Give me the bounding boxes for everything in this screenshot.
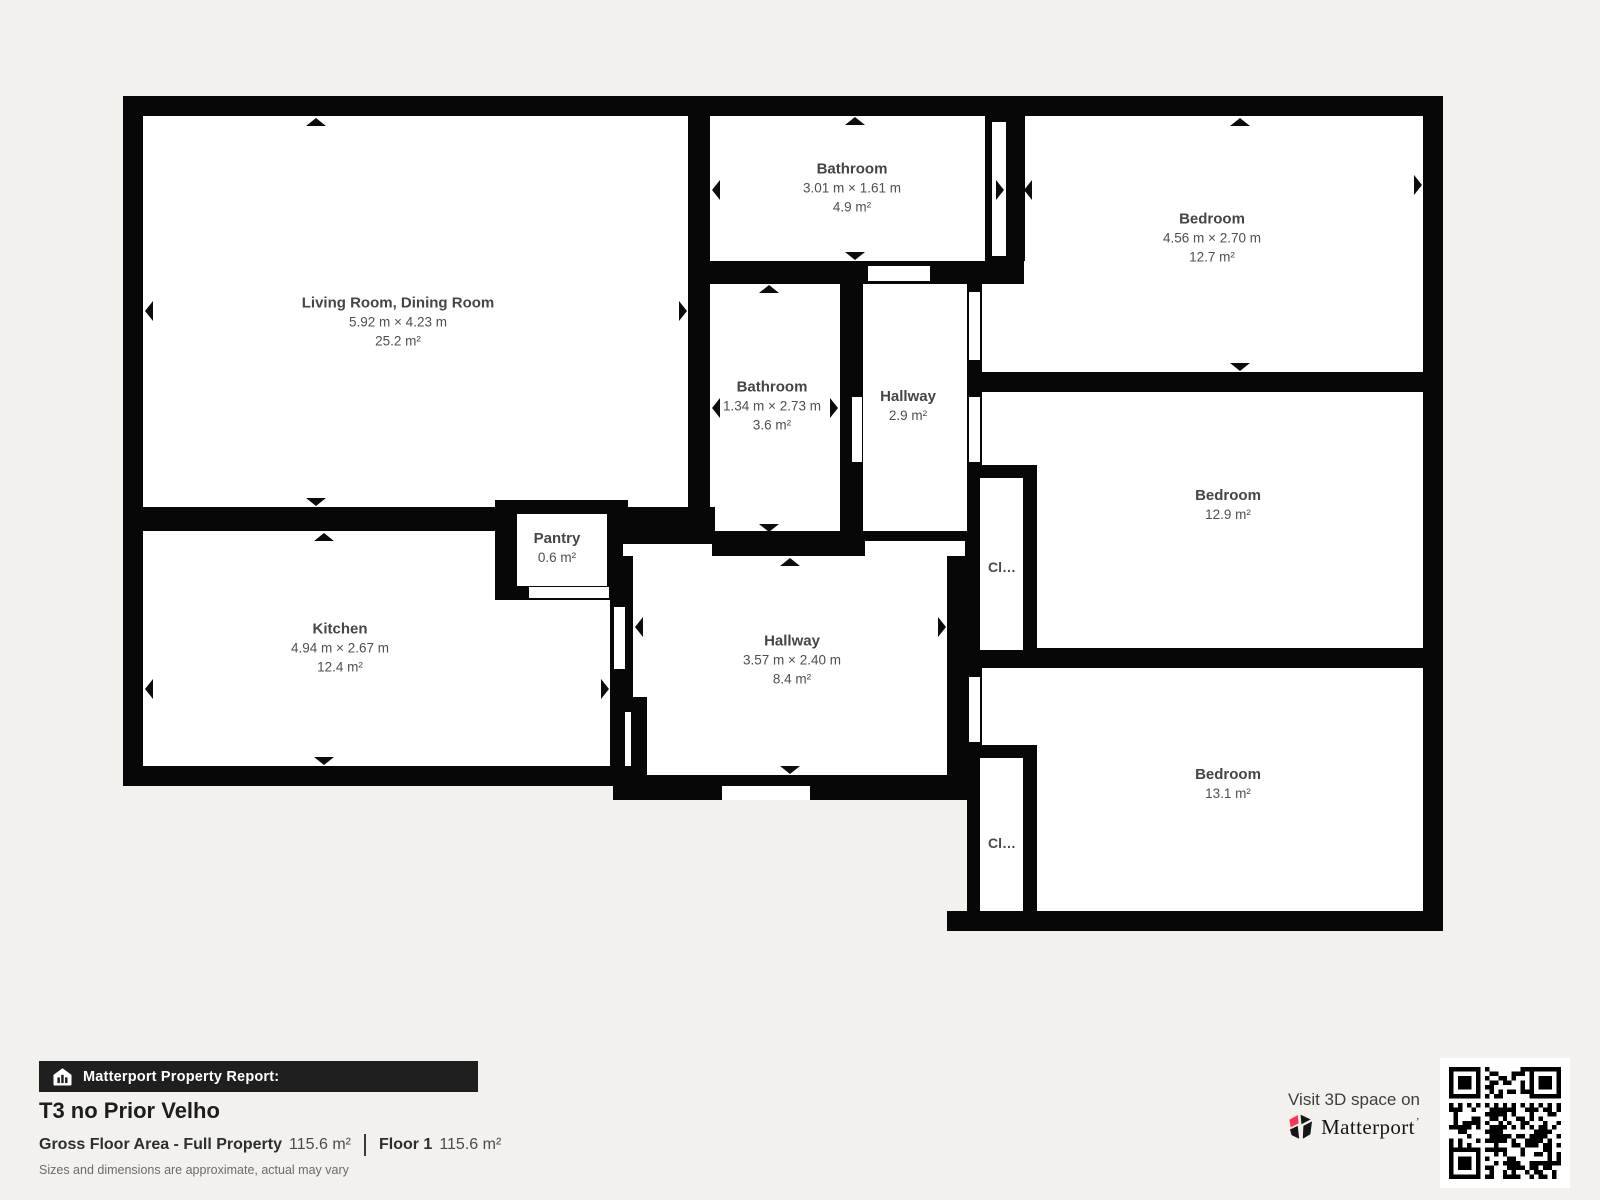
arrow-up-icon bbox=[759, 285, 779, 293]
house-chart-icon bbox=[53, 1067, 72, 1086]
matterport-logo-icon bbox=[1286, 1113, 1314, 1141]
wall-kitchen-bottom bbox=[123, 766, 635, 786]
wall-living-right bbox=[688, 96, 710, 556]
arrow-right-icon bbox=[601, 679, 609, 699]
wall-left bbox=[123, 96, 143, 786]
gross-floor-area-label: Gross Floor Area - Full Property bbox=[39, 1136, 282, 1154]
arrow-up-icon bbox=[306, 118, 326, 126]
kitchen-door bbox=[614, 607, 625, 669]
duct-channel bbox=[625, 712, 631, 766]
pantry-door bbox=[529, 587, 609, 598]
matterport-logo: Matterport’ bbox=[1203, 1113, 1420, 1141]
arrow-up-icon bbox=[314, 533, 334, 541]
arrow-up-icon bbox=[845, 117, 865, 125]
room-label-kitchen: Kitchen 4.94 m × 2.67 m 12.4 m² bbox=[291, 620, 389, 677]
wall-right bbox=[1423, 96, 1443, 931]
wall-hallmain-right bbox=[947, 556, 967, 800]
arrow-right-icon bbox=[830, 398, 838, 418]
hallway-small-opening bbox=[865, 541, 965, 556]
arrow-right-icon bbox=[679, 301, 687, 321]
arrow-up-icon bbox=[1230, 118, 1250, 126]
entrance-door bbox=[722, 786, 810, 800]
bedroom-bottom-door bbox=[969, 677, 980, 742]
area-summary: Gross Floor Area - Full Property 115.6 m… bbox=[39, 1134, 501, 1156]
matterport-wordmark: Matterport’ bbox=[1321, 1115, 1420, 1140]
bathroom-top-door bbox=[868, 266, 930, 281]
arrow-left-icon bbox=[712, 180, 720, 200]
disclaimer-text: Sizes and dimensions are approximate, ac… bbox=[39, 1163, 349, 1177]
trademark-tick: ’ bbox=[1416, 1116, 1420, 1128]
qr-code bbox=[1440, 1058, 1570, 1188]
arrow-left-icon bbox=[145, 301, 153, 321]
floor-value: 115.6 m² bbox=[439, 1136, 501, 1154]
visit-3d-text: Visit 3D space on bbox=[1203, 1090, 1420, 1110]
gross-floor-area-value: 115.6 m² bbox=[289, 1136, 351, 1154]
arrow-left-icon bbox=[145, 679, 153, 699]
arrow-right-icon bbox=[996, 180, 1004, 200]
wall-bedroomtop-bottom bbox=[980, 372, 1443, 392]
arrow-up-icon bbox=[780, 558, 800, 566]
wall-hallmain-step bbox=[633, 697, 647, 775]
room-label-bedroom-mid: Bedroom 12.9 m² bbox=[1195, 486, 1261, 524]
floor-label: Floor 1 bbox=[379, 1136, 432, 1154]
closet-label: Cl… bbox=[988, 835, 1016, 851]
wall-top bbox=[123, 96, 1443, 116]
room-label-bathroom-top: Bathroom 3.01 m × 1.61 m 4.9 m² bbox=[803, 160, 901, 217]
room-bedroom-top-patch bbox=[982, 282, 1022, 372]
vertical-divider bbox=[364, 1134, 366, 1156]
property-name: T3 no Prior Velho bbox=[39, 1098, 220, 1124]
room-label-bedroom-bottom: Bedroom 13.1 m² bbox=[1195, 765, 1261, 803]
arrow-down-icon bbox=[306, 498, 326, 506]
floor-plan: Living Room, Dining Room 5.92 m × 4.23 m… bbox=[0, 0, 1600, 1200]
arrow-down-icon bbox=[845, 252, 865, 260]
closet-label: Cl… bbox=[988, 559, 1016, 575]
arrow-left-icon bbox=[712, 398, 720, 418]
arrow-right-icon bbox=[1414, 175, 1422, 195]
arrow-down-icon bbox=[1230, 363, 1250, 371]
report-header-bar: Matterport Property Report: bbox=[39, 1061, 478, 1092]
bedroom-mid-door bbox=[969, 397, 980, 462]
arrow-right-icon bbox=[938, 617, 946, 637]
arrow-down-icon bbox=[759, 524, 779, 532]
bathroom-mid-door bbox=[852, 397, 862, 462]
report-bar-label: Matterport Property Report: bbox=[83, 1069, 279, 1085]
arrow-left-icon bbox=[635, 617, 643, 637]
wall-bathtop-bottom bbox=[688, 261, 1024, 284]
room-label-living-dining: Living Room, Dining Room 5.92 m × 4.23 m… bbox=[302, 294, 494, 351]
arrow-left-icon bbox=[1024, 180, 1032, 200]
room-label-bathroom-mid: Bathroom 1.34 m × 2.73 m 3.6 m² bbox=[723, 378, 821, 435]
room-label-pantry: Pantry 0.6 m² bbox=[534, 529, 581, 567]
room-label-hallway-small: Hallway 2.9 m² bbox=[880, 387, 936, 425]
arrow-down-icon bbox=[780, 766, 800, 774]
arrow-down-icon bbox=[314, 757, 334, 765]
room-label-hallway-main: Hallway 3.57 m × 2.40 m 8.4 m² bbox=[743, 632, 841, 689]
bedroom-top-door bbox=[969, 292, 980, 360]
room-label-bedroom-top: Bedroom 4.56 m × 2.70 m 12.7 m² bbox=[1163, 210, 1261, 267]
living-door bbox=[623, 544, 712, 556]
